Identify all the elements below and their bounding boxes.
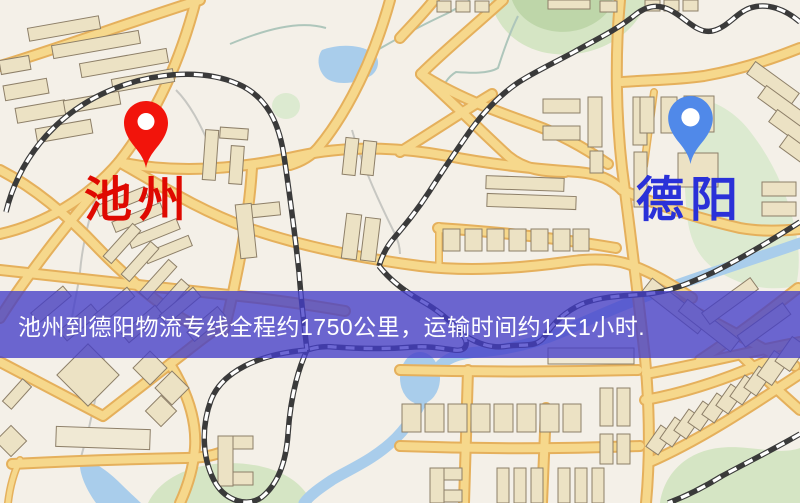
route-info-banner: 池州到德阳物流专线全程约1750公里，运输时间约1天1小时. <box>0 291 800 358</box>
pin-body <box>124 101 168 168</box>
map-pin-icon <box>124 101 168 168</box>
destination-label: 德阳 <box>636 177 744 225</box>
pin-hole <box>681 108 699 126</box>
pin-hole <box>138 113 155 130</box>
route-info-text: 池州到德阳物流专线全程约1750公里，运输时间约1天1小时. <box>18 308 645 342</box>
origin-pin[interactable] <box>124 101 168 173</box>
origin-label: 池州 <box>84 177 192 225</box>
map-background <box>0 0 800 503</box>
map-canvas[interactable]: 池州 德阳 池州到德阳物流专线全程约1750公里，运输时间约1天1小时. <box>0 0 800 503</box>
pin-body <box>668 96 713 164</box>
map-pin-icon <box>668 96 713 164</box>
destination-pin[interactable] <box>668 96 713 169</box>
